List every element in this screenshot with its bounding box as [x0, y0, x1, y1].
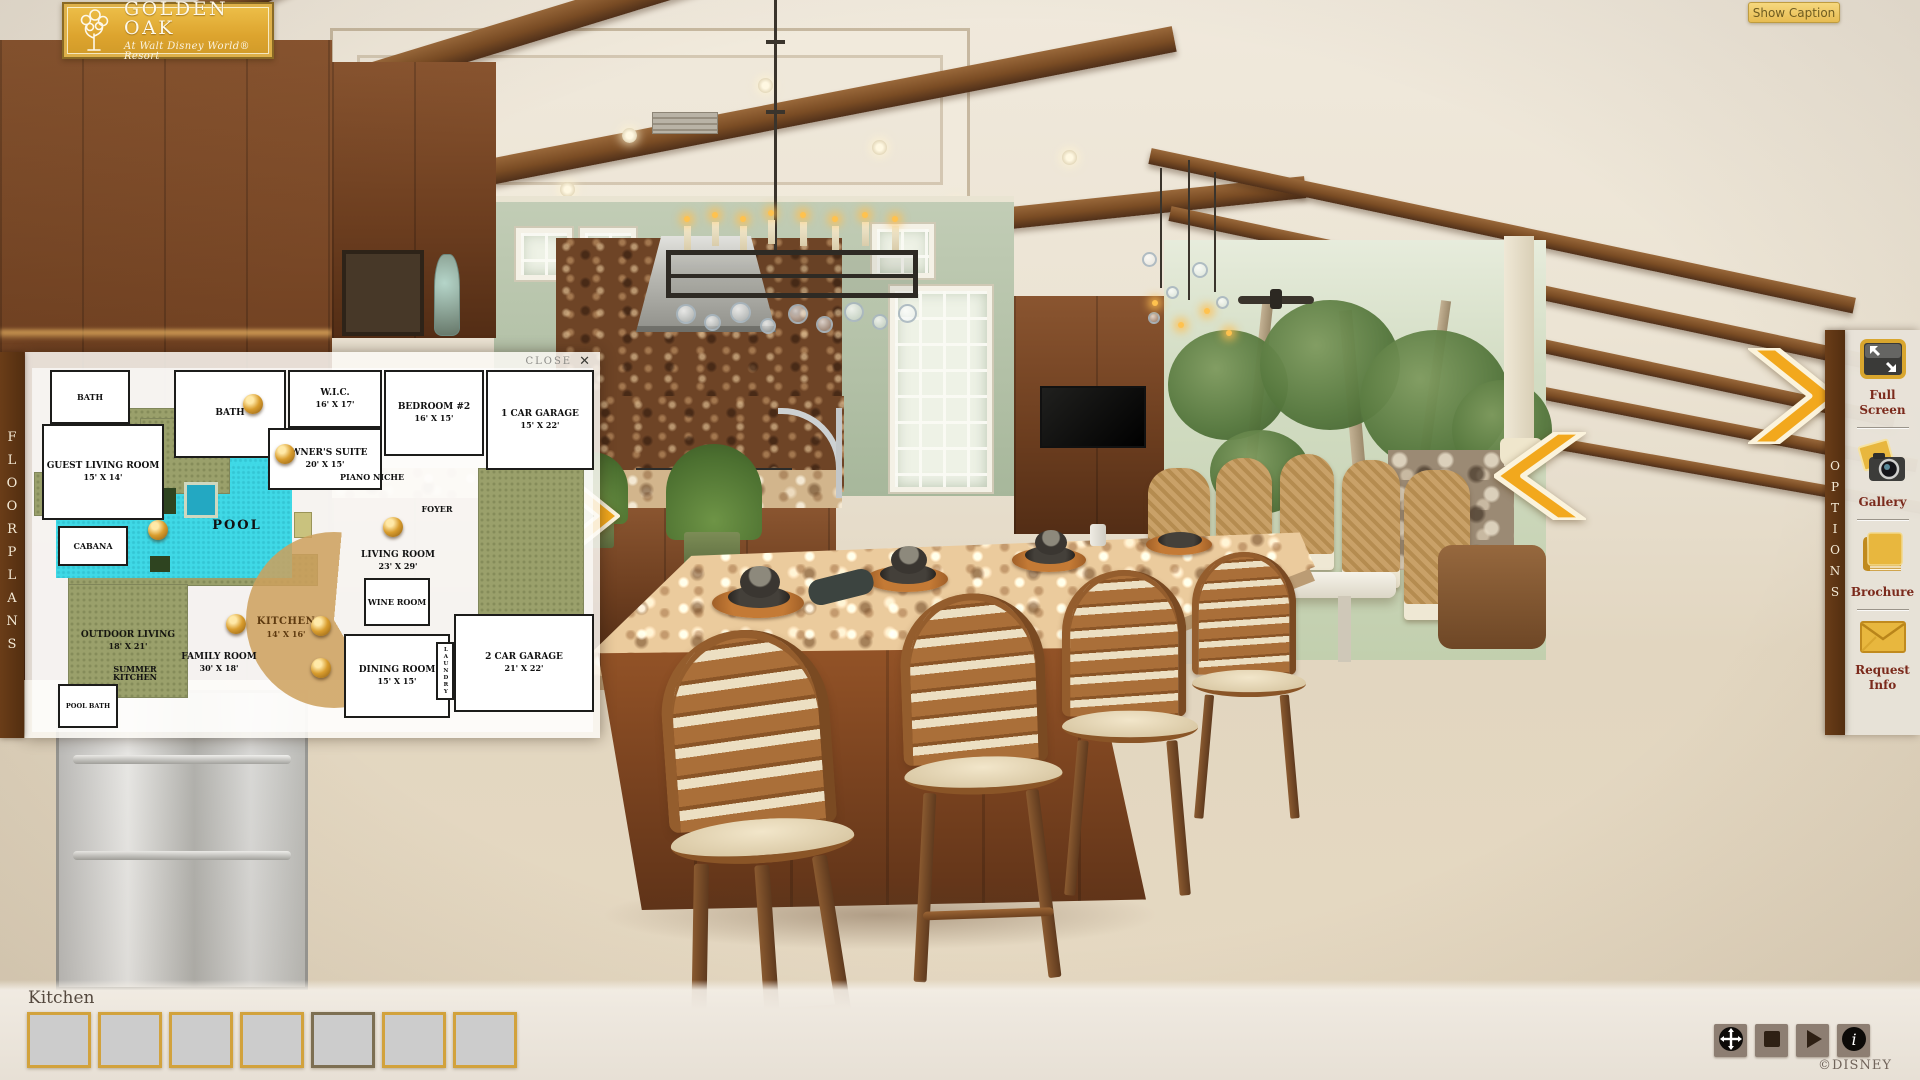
scene-decor: [800, 212, 806, 218]
thumbnail-strip: [27, 1012, 517, 1068]
scene-decor: [1216, 296, 1229, 309]
book-icon: [1857, 529, 1909, 581]
room-name: FAMILY ROOM: [181, 653, 256, 662]
viewpoint-marker-viewpoint-family-room[interactable]: [226, 614, 246, 634]
scene-decor: [800, 222, 807, 246]
scene-decor: [1166, 740, 1191, 896]
envelope-icon: [1858, 619, 1908, 659]
info-button[interactable]: i: [1837, 1024, 1870, 1057]
scene-decor: [684, 216, 690, 222]
scene-decor: [768, 210, 774, 216]
scene-decor: [1338, 596, 1351, 662]
scene-decor: [560, 182, 575, 197]
scene-thumbnail-thumb-1[interactable]: [27, 1012, 91, 1068]
scene-decor: [1192, 262, 1208, 278]
camera-icon: [1857, 437, 1909, 491]
floorplan-room-garage2: 2 CAR GARAGE 21' X 22': [454, 614, 594, 712]
scene-decor: [1204, 308, 1210, 314]
scene-decor: [622, 128, 637, 143]
scene-decor: [656, 624, 837, 833]
room-name: 2 CAR GARAGE: [485, 653, 563, 662]
scene-decor: [684, 226, 691, 250]
logo-title: GOLDEN OAK: [124, 0, 272, 38]
room-name: BATH: [77, 393, 103, 401]
viewpoint-marker-viewpoint-breakfast[interactable]: [311, 658, 331, 678]
scene-decor: [712, 222, 719, 246]
room-name: CABANA: [73, 542, 112, 550]
scene-decor: [898, 590, 1063, 797]
scene-decor: [1040, 386, 1146, 448]
logo-text: GOLDEN OAK At Walt Disney World® Resort: [124, 0, 272, 62]
scene-decor: [1178, 322, 1184, 328]
copyright-notice: ©DISNEY: [1818, 1058, 1892, 1073]
option-label: Full Screen: [1845, 388, 1920, 418]
fullscreen-icon: [1859, 338, 1907, 384]
scene-decor: [1166, 286, 1179, 299]
viewpoint-marker-viewpoint-kitchen[interactable]: [311, 616, 331, 636]
room-name: PIANO NICHE: [340, 473, 404, 481]
scene-decor: [740, 226, 747, 250]
room-name: W.I.C.: [320, 389, 349, 398]
floorplan-room-wic: W.I.C. 16' X 17': [288, 370, 382, 428]
room-name: GUEST LIVING ROOM: [47, 462, 160, 471]
scene-decor: [73, 851, 291, 860]
scene-decor: [1152, 300, 1158, 306]
tab-options[interactable]: OPTIONS: [1825, 330, 1845, 735]
room-name: KITCHEN: [257, 617, 315, 628]
scene-decor: [1142, 252, 1157, 267]
scene-decor: [844, 302, 864, 322]
floorplan-room-piano-niche: PIANO NICHE: [320, 460, 424, 494]
scene-decor: [892, 216, 898, 222]
scene-decor: [294, 512, 312, 538]
floorplan-close-button[interactable]: CLOSE ✕: [525, 354, 590, 369]
stop-icon: [1759, 1026, 1785, 1055]
scene-decor: [862, 212, 868, 218]
scene-thumbnail-thumb-4[interactable]: [240, 1012, 304, 1068]
scene-decor: [666, 444, 762, 540]
scene-decor: [1158, 532, 1202, 548]
scene-decor: [832, 226, 839, 250]
scene-decor: [766, 40, 785, 44]
golden-oak-logo[interactable]: GOLDEN OAK At Walt Disney World® Resort: [62, 2, 274, 59]
scene-decor: [656, 623, 856, 869]
floorplan-room-pool: POOL: [182, 508, 292, 544]
floorplan-room-foyer: FOYER: [400, 496, 474, 522]
svg-text:i: i: [1851, 1030, 1856, 1049]
info-icon: i: [1841, 1026, 1867, 1055]
scene-decor: [1062, 570, 1198, 743]
chevron-left-icon[interactable]: [1494, 432, 1586, 524]
floorplan-room-wine-room: WINE ROOM: [364, 578, 430, 626]
scene-decor: [652, 112, 718, 134]
logo-subtitle: At Walt Disney World® Resort: [124, 42, 272, 62]
scene-decor: [1192, 670, 1306, 697]
option-fullscreen[interactable]: Full Screen: [1845, 338, 1920, 418]
scene-decor: [760, 318, 776, 334]
scene-decor: [478, 468, 584, 616]
scene-decor: [1214, 172, 1216, 292]
scene-decor: [740, 216, 746, 222]
room-dims: 23' X 29': [379, 561, 418, 571]
floorplan-room-bath1: BATH: [50, 370, 130, 424]
floorplan-room-cabana: CABANA: [58, 526, 128, 566]
option-gallery[interactable]: Gallery: [1845, 437, 1920, 510]
scene-decor: [730, 302, 751, 323]
player-controls: i: [1714, 1024, 1870, 1057]
close-icon: ✕: [579, 354, 590, 369]
scene-thumbnail-thumb-6[interactable]: [382, 1012, 446, 1068]
oak-tree-icon: [74, 6, 114, 56]
virtual-tour-app: GOLDEN OAK At Walt Disney World® Resort …: [0, 0, 1920, 1080]
scene-decor: [712, 212, 718, 218]
room-name: LIVING ROOM: [361, 551, 435, 560]
scene-decor: [1188, 160, 1190, 300]
room-name: BATH: [215, 409, 244, 418]
option-label: Gallery: [1858, 495, 1906, 510]
close-label: CLOSE: [525, 356, 572, 367]
scene-decor: [788, 304, 808, 324]
tab-floorplans[interactable]: FLOORPLANS: [0, 352, 24, 738]
scene-decor: [1035, 530, 1067, 555]
scene-decor: [816, 316, 833, 333]
scene-decor: [342, 250, 424, 336]
scene-decor: [862, 222, 869, 246]
scene-thumbnail-thumb-7[interactable]: [453, 1012, 517, 1068]
scene-decor: [704, 314, 721, 331]
scene-decor: [676, 304, 696, 324]
room-name: WINE ROOM: [368, 598, 426, 606]
caption-bar: Kitchen: [0, 980, 1920, 1080]
scene-decor: [0, 330, 332, 340]
scene-decor: [1226, 330, 1232, 336]
room-name: POOL BATH: [66, 703, 110, 710]
scene-thumbnail-thumb-3[interactable]: [169, 1012, 233, 1068]
scene-decor: [898, 304, 917, 323]
scene-decor: [1062, 150, 1077, 165]
scene-decor: [768, 220, 775, 244]
scene-decor: [872, 140, 887, 155]
option-label: Brochure: [1851, 585, 1914, 600]
floorplan-room-bedroom2: BEDROOM #2 16' X 15': [384, 370, 484, 456]
room-name: POOL: [212, 519, 262, 533]
scene-caption: Kitchen: [28, 988, 94, 1008]
scene-decor: [1148, 312, 1160, 324]
room-name: 1 CAR GARAGE: [501, 410, 579, 419]
room-dims: 16' X 17': [316, 399, 355, 409]
pan-arrows-icon: [1718, 1026, 1744, 1055]
scene-decor: [1160, 168, 1162, 288]
divider: [1857, 427, 1909, 428]
room-dims: 15' X 15': [378, 676, 417, 686]
room-name: BEDROOM #2: [398, 403, 470, 412]
scene-decor: [898, 591, 1048, 766]
scene-decor: [892, 226, 899, 250]
scene-decor: [891, 546, 927, 574]
scene-decor: [836, 408, 842, 498]
viewpoint-marker-viewpoint-living-room[interactable]: [383, 517, 403, 537]
scene-decor: [150, 556, 170, 572]
viewpoint-marker-viewpoint-owners-suite[interactable]: [275, 444, 295, 464]
scene-decor: [832, 216, 838, 222]
scene-decor: [1062, 570, 1186, 717]
room-name: FOYER: [421, 505, 452, 513]
scene-decor: [600, 880, 1160, 950]
scene-decor: [1192, 552, 1306, 697]
room-name: DINING ROOM: [359, 666, 436, 675]
viewpoint-marker-viewpoint-pool[interactable]: [148, 520, 168, 540]
scene-decor: [766, 110, 785, 114]
room-dims: 14' X 16': [267, 629, 306, 639]
scene-decor: [1062, 711, 1198, 744]
option-brochure[interactable]: Brochure: [1845, 529, 1920, 600]
floorplan-room-garage1: 1 CAR GARAGE 15' X 22': [486, 370, 594, 470]
room-dims: 30' X 18': [200, 663, 239, 673]
pan-button[interactable]: [1714, 1024, 1747, 1057]
scene-decor: [774, 0, 777, 254]
room-dims: 15' X 22': [521, 420, 560, 430]
scene-decor: [1192, 552, 1296, 675]
show-caption-button[interactable]: Show Caption: [1748, 2, 1840, 23]
scene-decor: [434, 254, 460, 336]
scene-decor: [666, 250, 918, 298]
divider: [1857, 519, 1909, 520]
play-icon: [1800, 1026, 1826, 1055]
scene-decor: [1342, 460, 1400, 588]
stop-button[interactable]: [1755, 1024, 1788, 1057]
viewpoint-marker-viewpoint-owners-bath[interactable]: [243, 394, 263, 414]
floorplan-canvas: BATH GUEST LIVING ROOM 15' X 14' BATH W.…: [32, 368, 593, 732]
option-label: Request Info: [1845, 663, 1920, 693]
scene-decor: [1238, 296, 1314, 304]
scene-decor: [872, 314, 888, 330]
options-panel: Full Screen Gallery: [1845, 330, 1920, 735]
floorplan-panel: CLOSE ✕: [25, 352, 600, 738]
floorplan-room-dining-room: DINING ROOM 15' X 15': [344, 634, 450, 718]
scene-decor: [1438, 545, 1546, 649]
scene-decor: [758, 78, 773, 93]
scene-thumbnail-thumb-2[interactable]: [98, 1012, 162, 1068]
room-dims: 16' X 15': [415, 413, 454, 423]
scene-decor: [1090, 524, 1106, 546]
floorplan-room-guest-living: GUEST LIVING ROOM 15' X 14': [42, 424, 164, 520]
play-button[interactable]: [1796, 1024, 1829, 1057]
scene-decor: [73, 755, 291, 764]
room-name: LAUNDRY: [442, 647, 448, 696]
scene-decor: [1280, 694, 1300, 818]
scene-thumbnail-thumb-5[interactable]: [311, 1012, 375, 1068]
room-dims: 21' X 22': [505, 663, 544, 673]
divider: [1857, 609, 1909, 610]
scene-decor: [740, 566, 780, 598]
floorplan-room-pool-bath: POOL BATH: [58, 684, 118, 728]
room-dims: 15' X 14': [84, 472, 123, 482]
option-request-info[interactable]: Request Info: [1845, 619, 1920, 693]
floorplan-room-laundry: LAUNDRY: [436, 642, 454, 700]
room-name: OWNER'S SUITE: [282, 449, 367, 458]
